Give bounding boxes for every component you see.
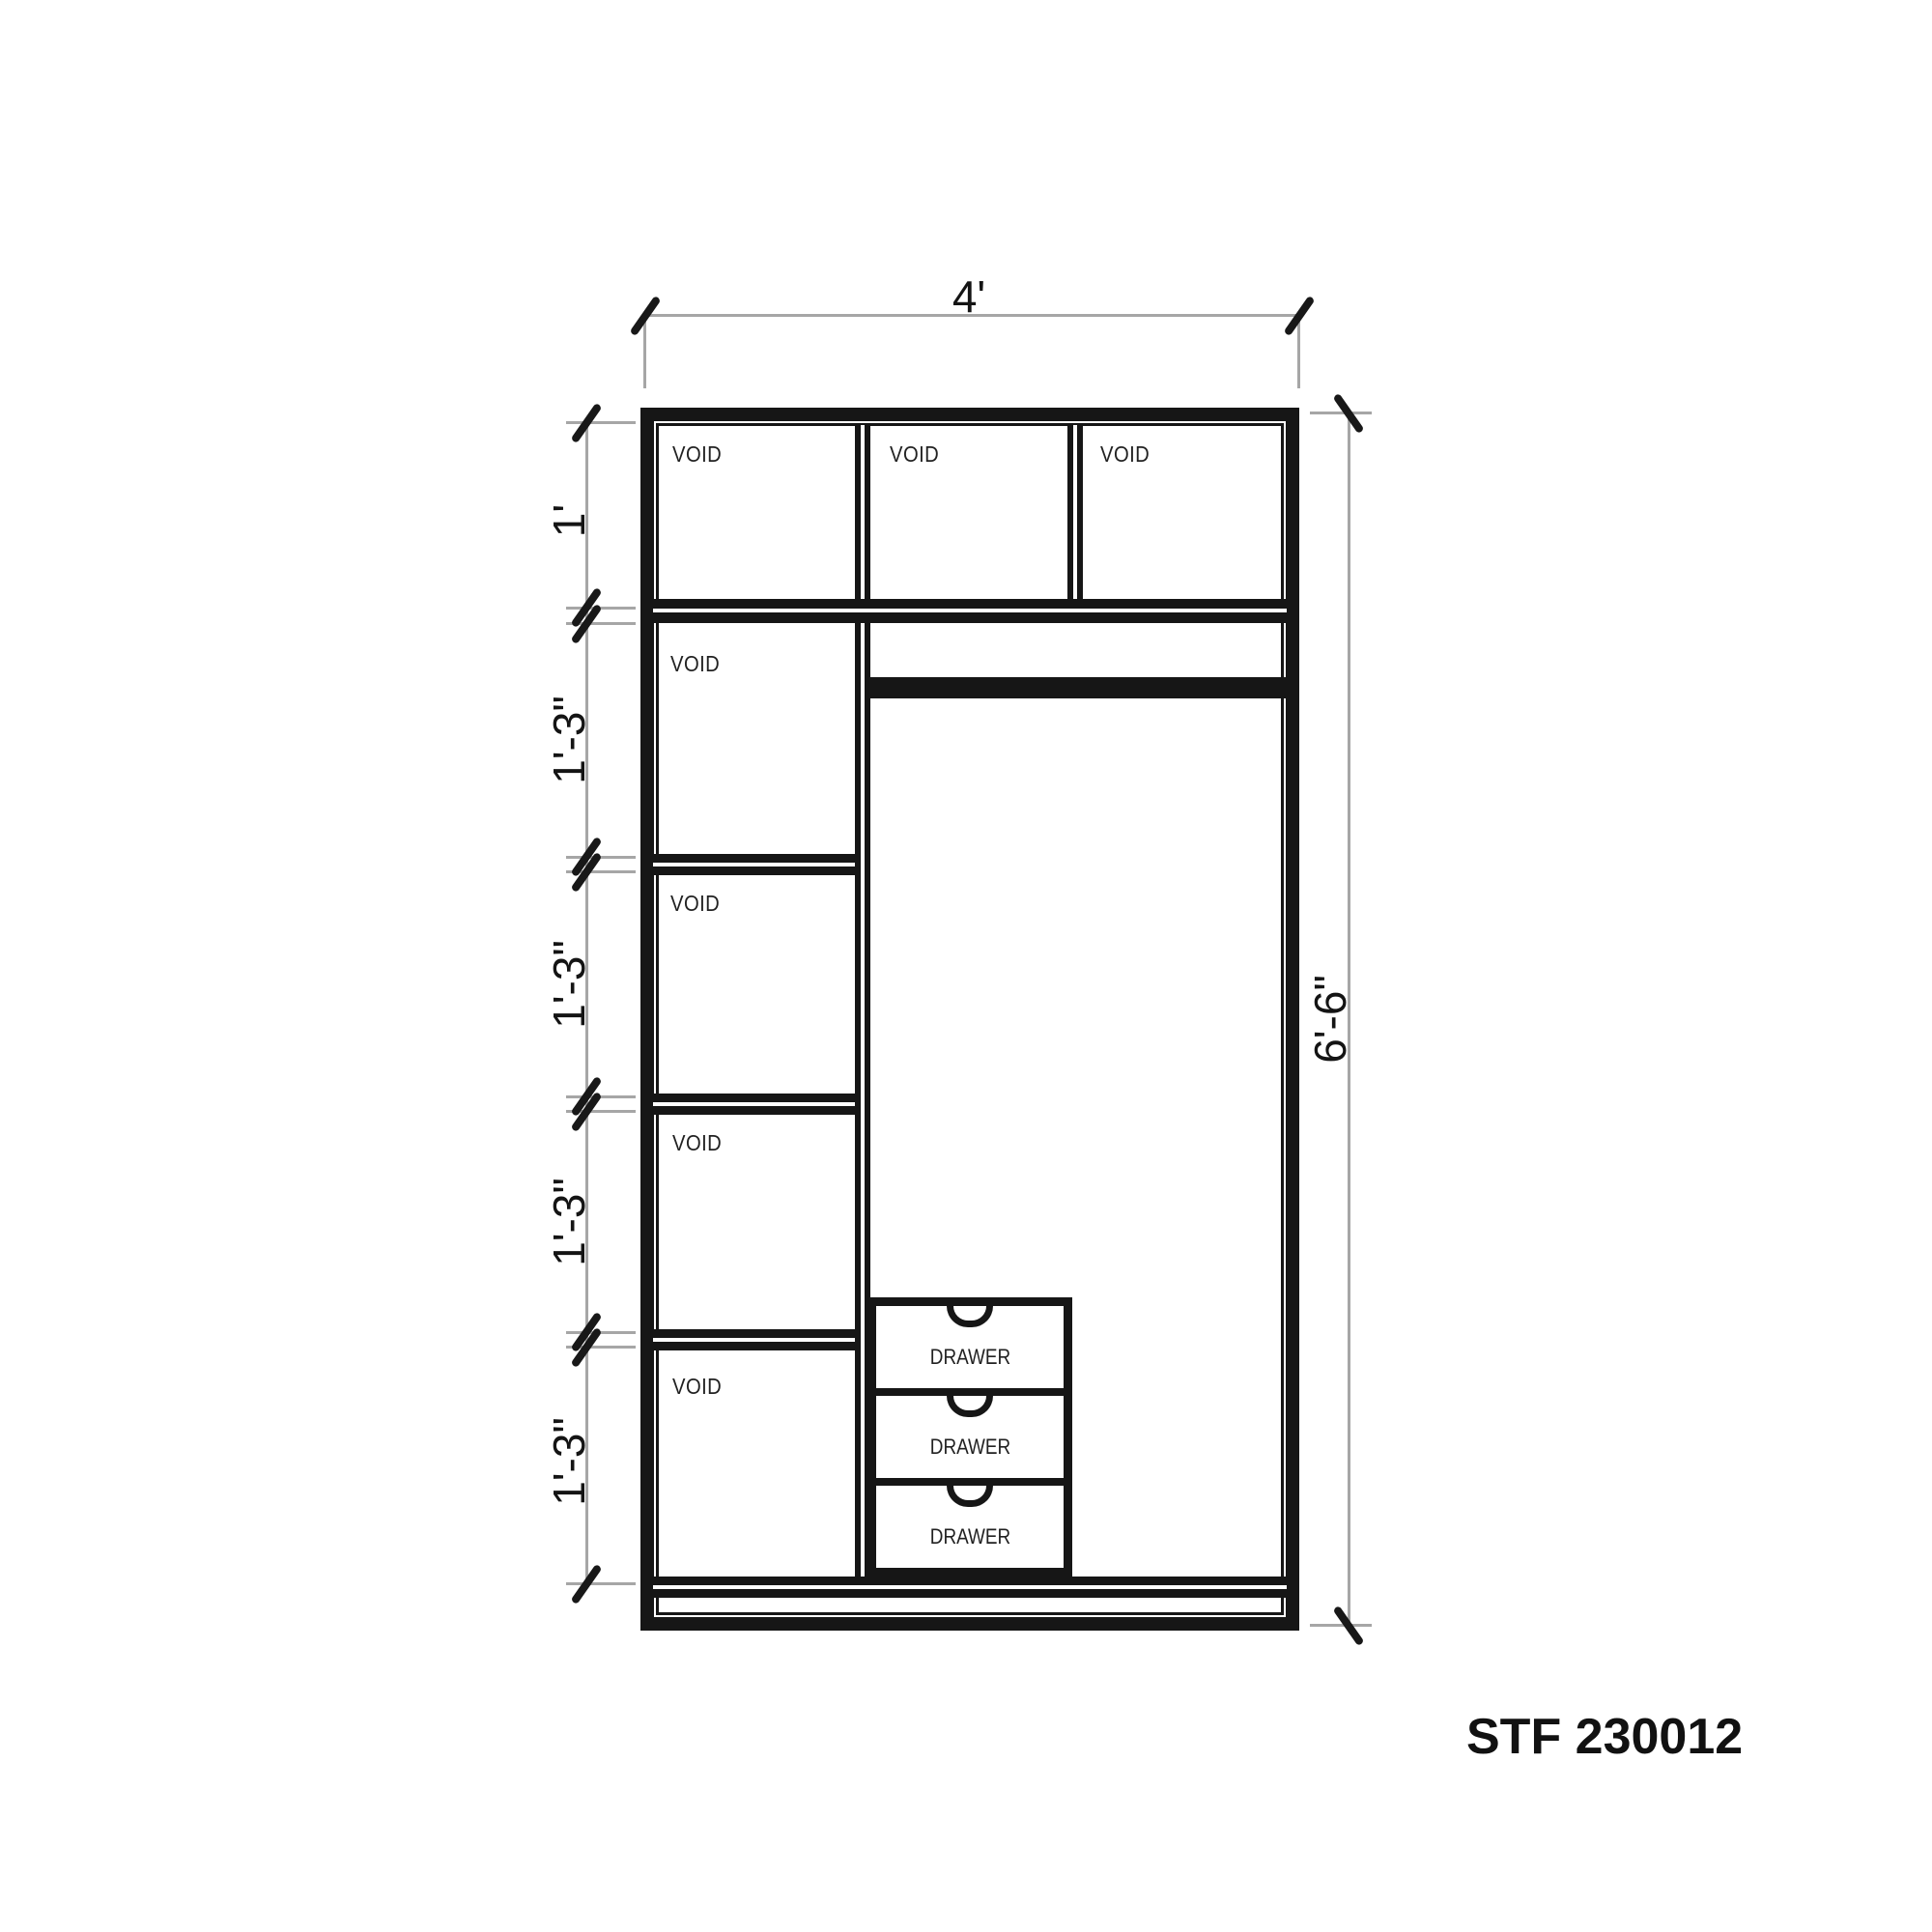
technical-drawing-canvas: 4' 1' 1'-3" 1'-3" 1'-3" 1'-3" 6'-6" <box>0 0 1932 1932</box>
right-dim-stub-top <box>1310 412 1372 414</box>
right-dimension-label: 6'-6" <box>1308 975 1352 1064</box>
left-dim-label-1: 1' <box>547 504 591 537</box>
left-dim-label-2: 1'-3" <box>547 696 591 784</box>
shelf-left-4 <box>653 1329 855 1350</box>
shelf-left-3 <box>653 1094 855 1115</box>
void-label: VOID <box>1100 443 1150 466</box>
drawer-label: DRAWER <box>876 1436 1064 1458</box>
drawer-label: DRAWER <box>876 1526 1064 1548</box>
drawer-divider <box>876 1478 1064 1486</box>
hanging-rail-band <box>870 677 1287 698</box>
shelf-top-row-bottom <box>653 599 1287 623</box>
void-label: VOID <box>672 1132 722 1154</box>
top-dimension-label: 4' <box>911 274 1027 319</box>
drawer-divider <box>876 1388 1064 1396</box>
left-dim-stub <box>566 421 636 424</box>
void-label: VOID <box>670 893 720 915</box>
top-dimension-extension-right <box>1297 319 1300 388</box>
shelf-left-2 <box>653 854 855 875</box>
drawer-label: DRAWER <box>876 1347 1064 1368</box>
left-dim-stub <box>566 1582 636 1585</box>
left-dim-label-5: 1'-3" <box>547 1417 591 1506</box>
bottom-shelf <box>653 1577 1287 1598</box>
void-label: VOID <box>670 653 720 675</box>
drawing-code: STF 230012 <box>1466 1712 1785 1762</box>
partition-top-row <box>1067 425 1083 623</box>
right-dim-stub-bottom <box>1310 1624 1372 1627</box>
void-label: VOID <box>672 443 722 466</box>
left-dim-label-3: 1'-3" <box>547 940 591 1029</box>
left-dim-label-4: 1'-3" <box>547 1178 591 1266</box>
void-label: VOID <box>672 1376 722 1398</box>
void-label: VOID <box>890 443 939 466</box>
top-dimension-extension-left <box>643 319 646 388</box>
